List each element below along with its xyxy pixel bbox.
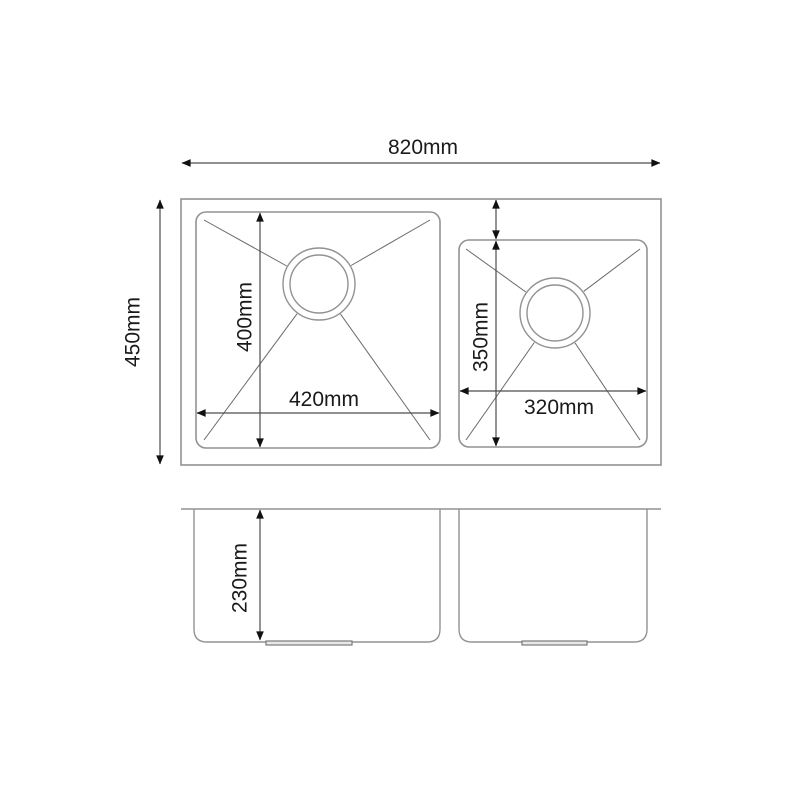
left-bowl-depth-dimension: 400mm — [234, 213, 261, 447]
right-bowl-width-label: 320mm — [524, 396, 594, 419]
left-drain-outlet-icon — [266, 641, 352, 645]
sink-dimension-diagram: 820mm 450mm 400mm 420mm 350mm 32 — [0, 0, 800, 800]
left-drain-icon — [283, 248, 355, 320]
overall-width-label: 820mm — [388, 136, 458, 159]
left-bowl-depth-label: 400mm — [234, 282, 257, 352]
top-view: 820mm 450mm 400mm 420mm 350mm 32 — [122, 136, 662, 465]
bowl-height-dimension: 230mm — [229, 510, 261, 640]
right-bowl-width-dimension: 320mm — [460, 391, 646, 419]
right-bowl-depth-label: 350mm — [470, 302, 493, 372]
overall-width-dimension: 820mm — [182, 136, 660, 163]
overall-depth-dimension: 450mm — [122, 200, 161, 464]
front-view: 230mm — [181, 509, 661, 645]
right-drain-outlet-icon — [522, 641, 587, 645]
overall-depth-label: 450mm — [122, 297, 145, 367]
bowl-height-label: 230mm — [229, 543, 252, 613]
diagram-canvas: 820mm 450mm 400mm 420mm 350mm 32 — [0, 0, 800, 800]
right-drain-icon — [520, 278, 590, 348]
left-bowl-width-label: 420mm — [289, 388, 359, 411]
right-bowl-profile — [459, 509, 647, 642]
